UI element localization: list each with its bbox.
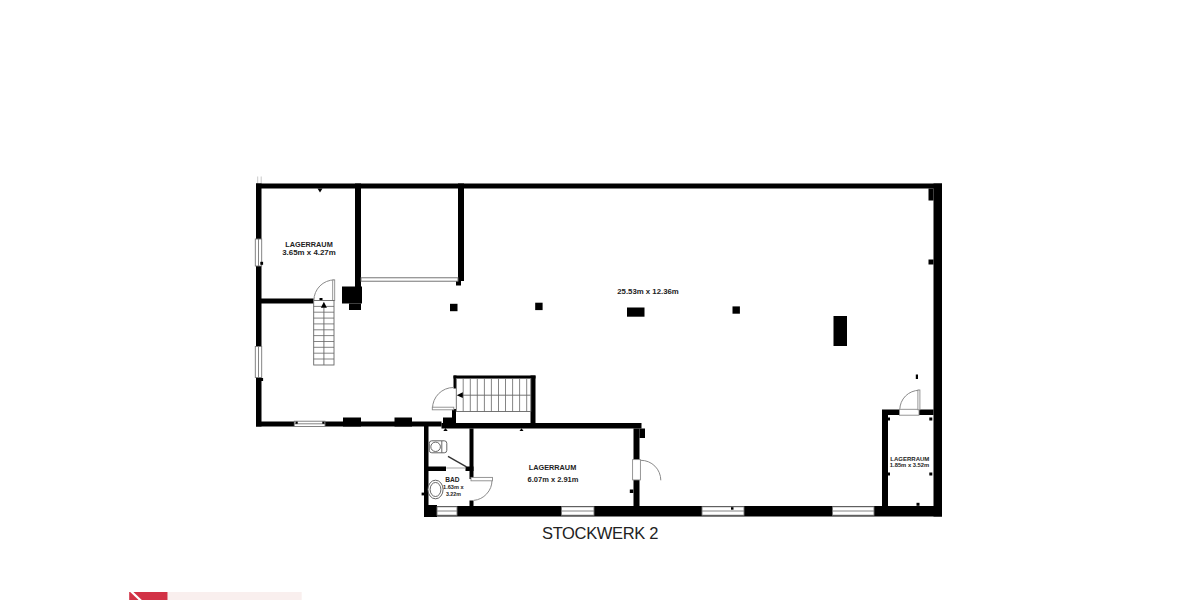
svg-text:STOCKWERK 2: STOCKWERK 2 bbox=[542, 524, 658, 542]
svg-text:6.07m x 2.91m: 6.07m x 2.91m bbox=[528, 475, 579, 484]
svg-text:1.63m x: 1.63m x bbox=[443, 484, 464, 490]
svg-text:3.22m: 3.22m bbox=[446, 491, 461, 497]
svg-text:3.65m x 4.27m: 3.65m x 4.27m bbox=[282, 248, 336, 257]
svg-text:1.85m x 3.52m: 1.85m x 3.52m bbox=[890, 462, 929, 468]
svg-text:BAD: BAD bbox=[445, 476, 460, 483]
svg-text:25.53m x 12.36m: 25.53m x 12.36m bbox=[617, 287, 679, 296]
svg-text:LAGERRAUM: LAGERRAUM bbox=[529, 463, 576, 472]
svg-text:LAGERRAUM: LAGERRAUM bbox=[890, 456, 929, 462]
